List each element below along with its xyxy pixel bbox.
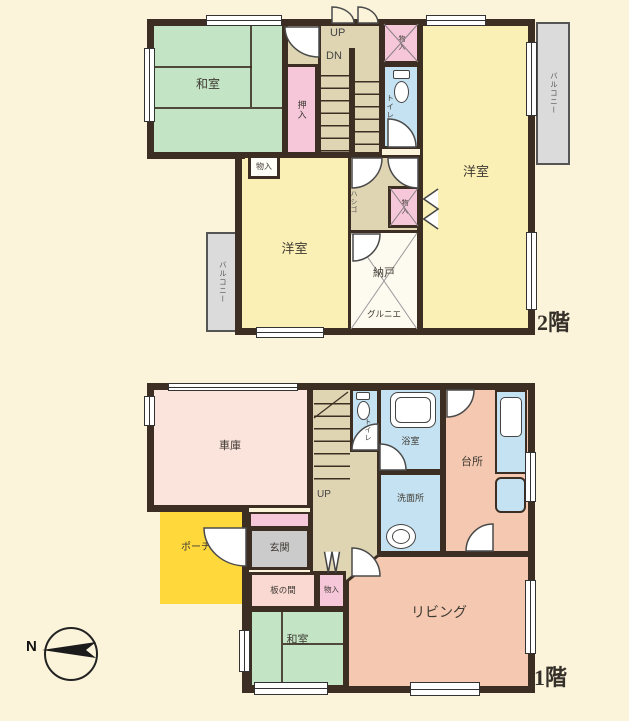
stair-landing-line [314,390,350,420]
entrance-step [249,512,310,528]
compass-north-label: N [26,638,37,655]
door-arc [388,119,416,147]
balcony-right-label: バルコニー [549,72,558,115]
room-washroom-label: 洗面所 [378,493,443,503]
room-nando-label: 納戸 [348,267,420,280]
room-living-label: リビング [346,604,532,620]
closet-oshiire-2f-label: 押入 [296,100,306,120]
door-arc [332,7,354,23]
garage-shutter [168,383,298,391]
stair-divider [349,48,355,153]
floor-plan: バルコニー バルコニー 和室 押入 UP DN 物入 洋室 ハシゴ 物入 [0,0,629,721]
stairs-up-label-2f: UP [330,27,345,40]
closet-1f: 物入 [317,572,346,609]
wall [147,152,245,159]
balcony-left-label: バルコニー [218,261,227,304]
room-entrance-label: 玄関 [270,543,290,555]
door-arc [352,158,382,188]
kitchen-sink-icon [500,397,522,437]
room-yoshitsu-left-label: 洋室 [238,242,351,257]
window [410,682,480,696]
window [526,42,537,116]
hashigo-label: ハシゴ [349,190,357,214]
window [525,452,536,502]
door-arc [380,444,406,470]
washroom-fixture-inner [392,529,410,544]
wall [235,152,242,335]
room-itanoma-label: 板の間 [270,586,296,596]
window [256,327,324,338]
floor1-label: 1階 [534,660,567,692]
room-garage-label: 車庫 [150,440,310,453]
door-arc [447,390,474,417]
bathtub-inner [395,397,431,423]
toilet-tank-icon [356,392,370,400]
closet-x-mark [384,24,418,62]
room-itanoma: 板の間 [249,572,317,609]
toilet-2f-label: トイレ [385,94,394,120]
window [144,48,155,122]
tatami-line [153,66,252,68]
door-arc [352,548,380,576]
kitchen-appliance [495,477,526,513]
window [525,580,536,654]
door-arc [285,27,319,57]
closet-1f-label: 物入 [324,586,339,595]
closet-small-2f-label: 物入 [256,162,272,171]
balcony-left-2f: バルコニー [206,232,238,332]
window [426,15,486,26]
wall [147,505,249,512]
room-kitchen-label: 台所 [443,456,501,469]
closet-x-mark [390,188,418,226]
bifold-closet-door [421,189,439,229]
door-arc [358,7,378,23]
room-entrance: 玄関 [249,528,310,570]
closet-oshiire-2f: 押入 [285,64,318,155]
door-arc [388,158,418,188]
tatami-line [281,612,283,685]
stairs-up-label-1f: UP [317,489,331,501]
stair-treads [321,64,350,152]
north-arrow-icon [40,640,98,660]
room-yoshitsu-right-label: 洋室 [420,165,532,180]
window [144,396,155,426]
room-washitsu-1f-label: 和室 [249,634,346,647]
room-washitsu-1f [249,609,346,688]
floor2-label: 2階 [537,305,570,337]
stair-treads [355,70,380,152]
window [526,232,537,310]
stairs-down-label-2f: DN [326,50,342,63]
grenier-label: グルニエ [348,310,420,320]
door-arc [353,234,380,261]
window [239,630,250,672]
closet-small-2f: 物入 [248,155,280,179]
window [254,682,328,695]
window [206,15,282,26]
toilet-1f-label: トイレ [363,418,371,442]
door-arc [466,524,493,551]
toilet-tank-icon [393,70,410,79]
toilet-bowl-icon [394,81,409,103]
room-washitsu-2f-label: 和室 [196,78,220,92]
balcony-right-2f: バルコニー [536,22,570,165]
bifold-closet-door [325,551,340,577]
tatami-line [153,107,282,109]
entrance-door-arc [204,528,246,566]
